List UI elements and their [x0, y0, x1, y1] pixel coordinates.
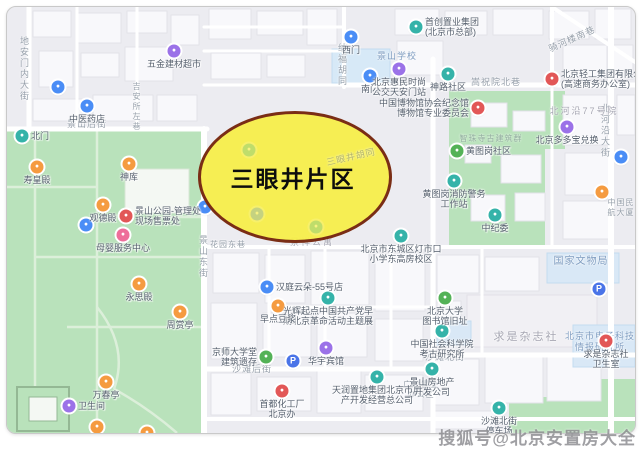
poi-label: 神库: [120, 172, 138, 182]
poi-pin[interactable]: •: [426, 363, 439, 376]
poi-label: 北京大学图书馆旧址: [422, 306, 467, 326]
map-label: 地安门内大街: [19, 36, 29, 102]
poi-pin[interactable]: •: [322, 292, 335, 305]
poi-pin[interactable]: •: [546, 73, 559, 86]
watermark: 搜狐号@北京安置房大全: [438, 424, 636, 449]
poi-pin[interactable]: •: [442, 68, 455, 81]
poi-pin[interactable]: •: [451, 145, 464, 158]
poi-label: 汉庭云朵-55号店: [276, 282, 343, 292]
poi-label: 北京市东城区灯市口小学东高房校区: [360, 244, 441, 264]
poi-pin[interactable]: •: [120, 210, 133, 223]
poi-label: 卫生间: [78, 401, 105, 411]
poi-label: 中医药店: [69, 114, 105, 124]
poi-label: 五金建材超市: [147, 59, 201, 69]
poi-pin[interactable]: •: [81, 100, 94, 113]
poi-pin[interactable]: •: [276, 385, 289, 398]
poi-pin[interactable]: •: [97, 199, 110, 212]
poi-pin[interactable]: •: [561, 121, 574, 134]
poi-label: 光辉起点中国共产党早期北京革命活动主题展: [283, 306, 373, 326]
poi-pin[interactable]: •: [243, 144, 256, 157]
poi-label: 华宇宾馆: [308, 356, 344, 366]
poi-pin[interactable]: •: [615, 151, 628, 164]
map-label: 求是杂志社: [494, 332, 559, 342]
map-label: 嵩祝院北巷: [471, 77, 521, 87]
poi-pin[interactable]: •: [395, 230, 408, 243]
map-label: 景山学校: [377, 51, 417, 61]
poi-pin[interactable]: •: [436, 325, 449, 338]
poi-pin[interactable]: •: [174, 306, 187, 319]
poi-label: 万春亭: [92, 390, 119, 400]
poi-pin[interactable]: •: [371, 371, 384, 384]
poi-pin[interactable]: •: [117, 229, 130, 242]
map-label: 吉安所左巷: [131, 82, 141, 132]
poi-pin[interactable]: •: [63, 400, 76, 413]
map-label: 花园东巷: [210, 240, 246, 250]
poi-pin[interactable]: •: [133, 278, 146, 291]
poi-label: 母婴服务中心: [96, 243, 150, 253]
poi-pin[interactable]: •: [52, 81, 65, 94]
poi-pin[interactable]: •: [123, 158, 136, 171]
highlight-label: 三眼井片区: [231, 160, 356, 194]
poi-pin[interactable]: •: [600, 335, 613, 348]
poi-label: 中纪委: [481, 223, 508, 233]
poi-label: 早点豆浆: [260, 314, 296, 324]
map-canvas[interactable]: ••中医药店•五金建材超市•西门•首创置业集团(北京市总部)•南门•北京惠民时尚…: [6, 6, 636, 434]
poi-pin[interactable]: •: [16, 130, 29, 143]
poi-label: 北京惠民时尚公交天安门站: [372, 77, 426, 97]
poi-pin[interactable]: •: [320, 342, 333, 355]
poi-label: 景山公园-管理处现场售票处: [135, 206, 201, 226]
poi-pin[interactable]: •: [141, 427, 154, 435]
poi-label: 北门: [31, 131, 49, 141]
map-label: 北河沿77号院: [549, 106, 618, 116]
poi-pin[interactable]: •: [393, 63, 406, 76]
poi-pin[interactable]: •: [489, 209, 502, 222]
map-label: 国家文物局: [554, 257, 609, 267]
poi-label: 黄图岗社区: [466, 146, 511, 156]
poi-label: 中国社会科学院考古研究所: [410, 339, 473, 359]
map-label: 中国民: [608, 198, 635, 208]
poi-label: 寿皇殿: [23, 175, 50, 185]
poi-label: 中国博物馆协会纪念馆博物馆专业委员会: [379, 98, 469, 118]
poi-label: 西门: [342, 45, 360, 55]
map-label: 航大厦: [608, 208, 635, 218]
poi-pin[interactable]: •: [410, 21, 423, 34]
poi-pin[interactable]: •: [596, 186, 609, 199]
poi-pin[interactable]: P: [287, 355, 300, 368]
poi-pin[interactable]: •: [448, 175, 461, 188]
poi-label: 求是杂志社卫生室: [583, 349, 628, 369]
poi-pin[interactable]: •: [439, 292, 452, 305]
poi-pin[interactable]: •: [31, 161, 44, 174]
poi-label: 首创置业集团(北京市总部): [425, 17, 479, 37]
poi-label: 神路社区: [430, 82, 466, 92]
poi-pin[interactable]: •: [493, 402, 506, 415]
map-label: 景山东街: [198, 235, 208, 279]
poi-pin[interactable]: •: [261, 281, 274, 294]
poi-pin[interactable]: •: [345, 31, 358, 44]
poi-label: 周赏亭: [166, 320, 193, 330]
poi-pin[interactable]: •: [91, 421, 104, 434]
poi-pin[interactable]: •: [100, 376, 113, 389]
poi-label: 京师大学堂建筑遗存: [212, 347, 257, 367]
poi-label: 景山房地产开发公司: [409, 377, 454, 397]
poi-label: 北京多多宝兑换: [535, 135, 598, 145]
poi-pin[interactable]: •: [168, 45, 181, 58]
poi-pin[interactable]: •: [472, 102, 485, 115]
poi-label: 永思殿: [125, 292, 152, 302]
poi-pin[interactable]: •: [310, 221, 323, 234]
poi-pin[interactable]: •: [251, 208, 264, 221]
poi-label: 黄图岗消防警务工作站: [422, 189, 485, 209]
poi-label: 首都化工厂北京办: [259, 399, 304, 419]
poi-label: 观德殿: [89, 213, 116, 223]
map-label: 智珠寺古建筑群: [460, 134, 523, 144]
poi-pin[interactable]: •: [260, 351, 273, 364]
poi-pin[interactable]: P: [593, 283, 606, 296]
poi-label: 北京轻工集团有限公司(高速商务办公室): [561, 69, 636, 89]
